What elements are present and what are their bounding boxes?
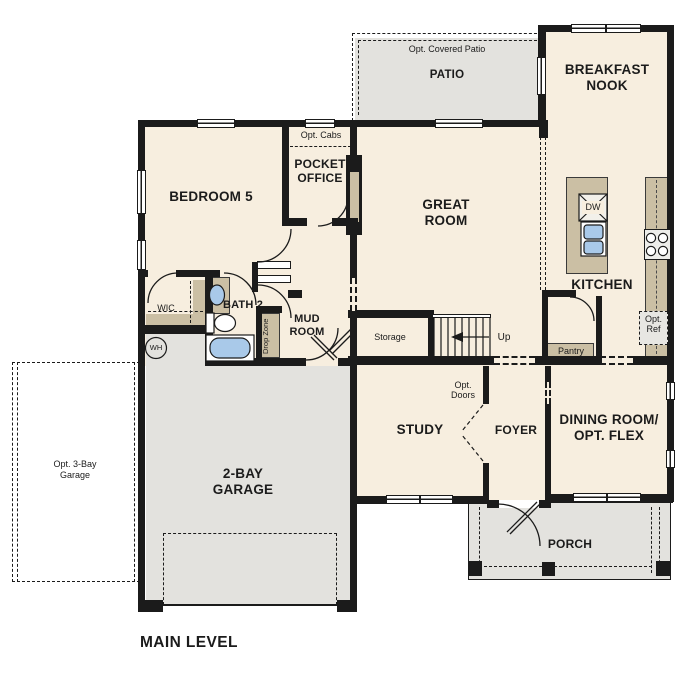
garage-door-outline bbox=[163, 533, 337, 605]
window bbox=[435, 119, 483, 128]
porch-post bbox=[469, 561, 482, 576]
room-label-bedroom5: BEDROOM 5 bbox=[161, 189, 261, 205]
wall bbox=[337, 600, 357, 612]
wall bbox=[348, 356, 494, 365]
room-label-pocket-office: POCKET OFFICE bbox=[286, 158, 354, 186]
room-divider-dashed bbox=[545, 137, 546, 290]
stove bbox=[644, 229, 671, 260]
window bbox=[607, 493, 641, 502]
garage-door-sill bbox=[163, 604, 337, 606]
wall bbox=[176, 270, 220, 277]
stairs-landing-edge bbox=[432, 314, 491, 318]
window bbox=[666, 450, 675, 468]
room-label-garage: 2-BAY GARAGE bbox=[205, 466, 281, 497]
wall bbox=[138, 600, 163, 612]
wall bbox=[545, 404, 551, 502]
note-water-heater: WH bbox=[145, 344, 167, 353]
window bbox=[386, 495, 420, 504]
porch-post bbox=[542, 562, 555, 576]
cased-opening bbox=[494, 356, 535, 365]
cased-opening bbox=[600, 356, 633, 365]
floor-great-room bbox=[348, 120, 545, 366]
room-label-bath2: BATH 2 bbox=[222, 299, 264, 312]
porch-dash-line bbox=[651, 507, 652, 573]
note-opt-doors: Opt. Doors bbox=[442, 381, 484, 401]
note-stairs-up: Up bbox=[493, 332, 515, 344]
wall bbox=[348, 310, 434, 318]
room-divider-dashed bbox=[540, 137, 541, 290]
window bbox=[537, 57, 546, 95]
opt-cabs-dashline bbox=[290, 146, 351, 148]
wall bbox=[542, 290, 548, 365]
room-label-study: STUDY bbox=[390, 422, 450, 438]
plan-title: MAIN LEVEL bbox=[140, 634, 270, 652]
wall bbox=[288, 290, 302, 298]
window bbox=[571, 24, 606, 33]
room-label-wic: WIC bbox=[146, 303, 186, 313]
wall bbox=[282, 218, 307, 226]
room-label-great-room: GREAT ROOM bbox=[406, 197, 486, 228]
wic-shelf-dashline bbox=[190, 281, 191, 323]
note-opt-cabs: Opt. Cabs bbox=[290, 130, 352, 140]
porch-dash-line bbox=[479, 566, 652, 567]
window bbox=[420, 495, 453, 504]
wall bbox=[545, 366, 551, 382]
window bbox=[137, 240, 146, 270]
room-label-mud-room: MUD ROOM bbox=[281, 313, 333, 339]
room-label-breakfast-nook: BREAKFAST NOOK bbox=[553, 62, 661, 93]
wall bbox=[667, 25, 674, 502]
window bbox=[573, 493, 607, 502]
wall bbox=[332, 218, 358, 226]
wall bbox=[596, 296, 602, 365]
note-dishwasher: DW bbox=[582, 202, 604, 212]
room-label-foyer: FOYER bbox=[486, 424, 546, 438]
window bbox=[197, 119, 235, 128]
room-label-dining-flex: DINING ROOM/ OPT. FLEX bbox=[556, 412, 662, 443]
door-leaf bbox=[257, 261, 291, 269]
wic-shelf-right bbox=[193, 280, 205, 325]
floor-plan: BEDROOM 5 WIC BATH 2 POCKET OFFICE GREAT… bbox=[0, 0, 687, 687]
window bbox=[137, 170, 146, 214]
room-label-patio: PATIO bbox=[417, 69, 477, 82]
room-label-kitchen: KITCHEN bbox=[562, 277, 642, 293]
window bbox=[666, 382, 675, 400]
note-opt-covered-patio: Opt. Covered Patio bbox=[397, 44, 497, 54]
note-opt-3bay-garage: Opt. 3-Bay Garage bbox=[42, 459, 108, 481]
door-leaf bbox=[257, 275, 291, 283]
front-door-opening bbox=[499, 500, 539, 508]
window bbox=[305, 119, 335, 128]
room-label-storage: Storage bbox=[365, 332, 415, 342]
wall bbox=[205, 277, 213, 366]
room-label-porch: PORCH bbox=[540, 538, 600, 552]
note-pantry: Pantry bbox=[549, 346, 593, 356]
cased-opening bbox=[350, 278, 357, 311]
note-opt-ref: Opt. Ref bbox=[638, 314, 669, 335]
window bbox=[606, 24, 641, 33]
wall bbox=[138, 325, 213, 334]
note-drop-zone: Drop Zone bbox=[262, 314, 279, 358]
kitchen-island bbox=[566, 177, 608, 274]
wall bbox=[138, 270, 148, 277]
wall bbox=[428, 318, 434, 358]
wall bbox=[487, 500, 499, 508]
cased-opening bbox=[545, 382, 551, 404]
porch-post bbox=[656, 561, 670, 576]
